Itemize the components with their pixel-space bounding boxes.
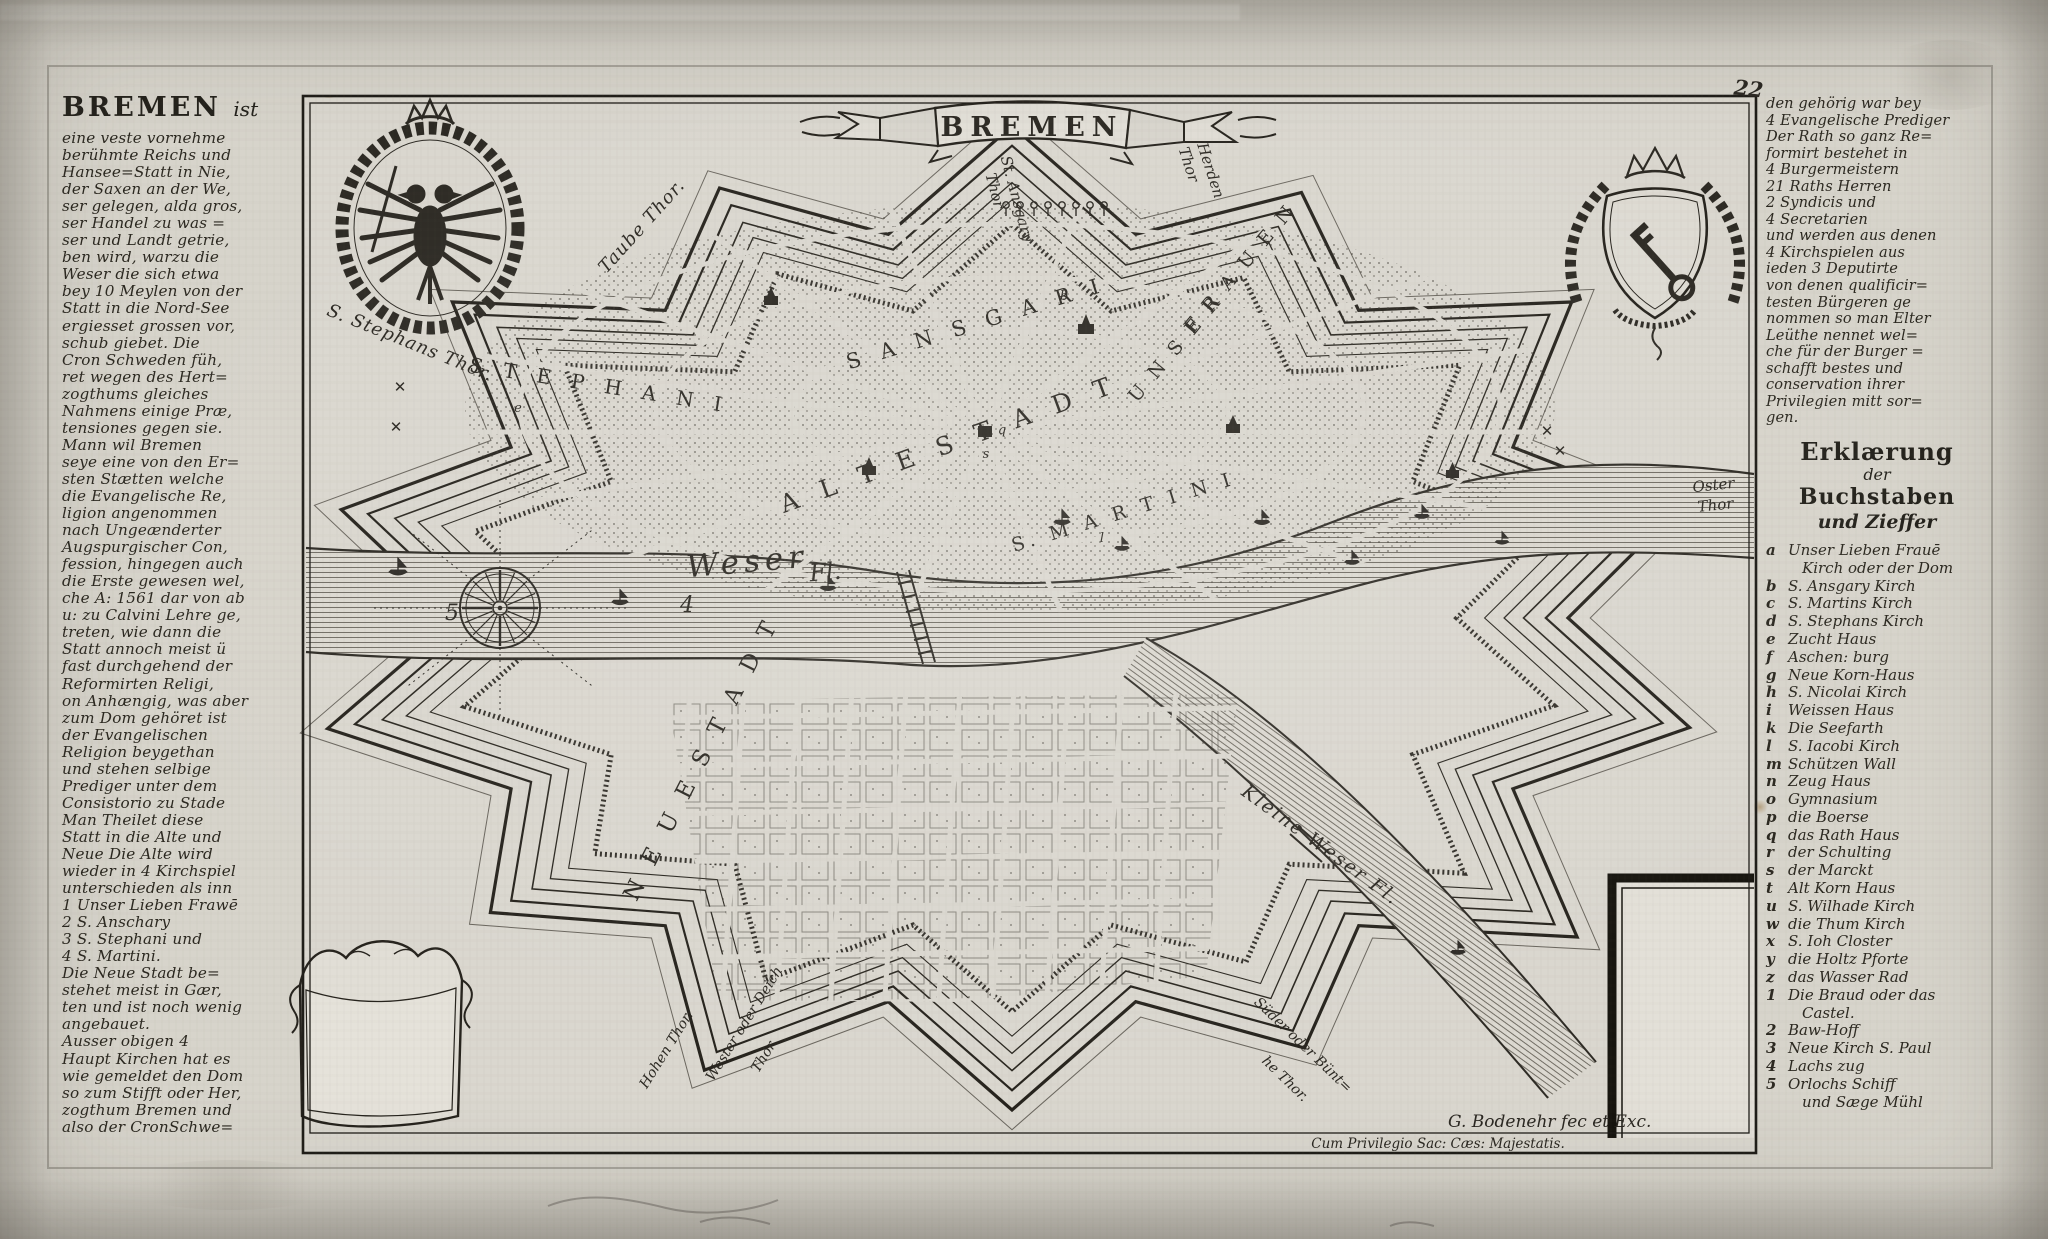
right-text-column: den gehörig war bey4 Evangelische Predig… bbox=[1766, 96, 1988, 1111]
legend-row: wdie Thum Kirch bbox=[1766, 916, 1988, 934]
legend-key bbox=[1766, 560, 1788, 578]
map-label: e bbox=[514, 401, 522, 416]
map-label: b bbox=[1060, 289, 1068, 304]
text-line: treten, wie dann die bbox=[62, 624, 312, 641]
legend-row: und Sæge Mühl bbox=[1766, 1094, 1988, 1112]
text-line: Nahmens einige Præ, bbox=[62, 403, 312, 420]
empty-cartouche bbox=[290, 941, 472, 1126]
text-line: 4 Secretarien bbox=[1766, 212, 1988, 229]
text-line: Cron Schweden füh, bbox=[62, 352, 312, 369]
text-line: Statt in die Alte und bbox=[62, 829, 312, 846]
legend-key: q bbox=[1766, 827, 1788, 845]
legend-text: das Wasser Rad bbox=[1788, 969, 1908, 987]
legend-key: z bbox=[1766, 969, 1788, 987]
text-line: fession, hingegen auch bbox=[62, 556, 312, 573]
legend-text: Alt Korn Haus bbox=[1788, 880, 1895, 898]
legend-text: Die Seefarth bbox=[1788, 720, 1884, 738]
map-label: q bbox=[998, 423, 1006, 438]
left-column-heading: BREMEN ist bbox=[62, 92, 312, 123]
legend-row: 5Orlochs Schiff bbox=[1766, 1076, 1988, 1094]
legend-key: f bbox=[1766, 649, 1788, 667]
right-column-intro: den gehörig war bey4 Evangelische Predig… bbox=[1766, 96, 1988, 427]
legend-key: g bbox=[1766, 667, 1788, 685]
text-line: angebauet. bbox=[62, 1016, 312, 1033]
map-label: 4 bbox=[679, 593, 694, 618]
legend-text: S. Ansgary Kirch bbox=[1788, 578, 1916, 596]
text-line: ligion angenommen bbox=[62, 505, 312, 522]
legend-title-line: Erklærung bbox=[1766, 437, 1988, 466]
legend-row: hS. Nicolai Kirch bbox=[1766, 684, 1988, 702]
text-line: den gehörig war bey bbox=[1766, 96, 1988, 113]
privilege-imprint: Cum Privilegio Sac: Cæs: Majestatis. bbox=[1311, 1136, 1565, 1152]
legend-title-line: und Zieffer bbox=[1766, 510, 1988, 534]
text-line: gen. bbox=[1766, 410, 1988, 427]
legend-key: w bbox=[1766, 916, 1788, 934]
text-line: Hansee=Statt in Nie, bbox=[62, 164, 312, 181]
legend-row: eZucht Haus bbox=[1766, 631, 1988, 649]
legend-text: Gymnasium bbox=[1788, 791, 1878, 809]
text-line: eine veste vornehme bbox=[62, 130, 312, 147]
text-line: und werden aus denen bbox=[1766, 228, 1988, 245]
legend-row: Kirch oder der Dom bbox=[1766, 560, 1988, 578]
legend-text: die Thum Kirch bbox=[1788, 916, 1906, 934]
legend-key bbox=[1766, 1094, 1788, 1112]
text-line: nach Ungeænderter bbox=[62, 522, 312, 539]
text-line: also der CronSchwe= bbox=[62, 1119, 312, 1136]
legend-text: S. Martins Kirch bbox=[1788, 595, 1913, 613]
legend-row: qdas Rath Haus bbox=[1766, 827, 1988, 845]
text-line: 2 S. Anschary bbox=[62, 914, 312, 931]
text-line: Haupt Kirchen hat es bbox=[62, 1051, 312, 1068]
legend-key: k bbox=[1766, 720, 1788, 738]
legend-row: pdie Boerse bbox=[1766, 809, 1988, 827]
text-line: zogthums gleiches bbox=[62, 386, 312, 403]
legend-row: rder Schulting bbox=[1766, 844, 1988, 862]
legend-row: 1Die Braud oder das bbox=[1766, 987, 1988, 1005]
text-line: der Evangelischen bbox=[62, 727, 312, 744]
text-line: 3 S. Stephani und bbox=[62, 931, 312, 948]
text-line: 4 Burgermeistern bbox=[1766, 162, 1988, 179]
new-town-blocks bbox=[660, 690, 1240, 1010]
legend-text: Orlochs Schiff bbox=[1788, 1076, 1896, 1094]
text-line: und stehen selbige bbox=[62, 761, 312, 778]
engraver-signature: G. Bodenehr fec et Exc. bbox=[1448, 1112, 1651, 1132]
text-line: 4 S. Martini. bbox=[62, 948, 312, 965]
text-line: seye eine von den Er= bbox=[62, 454, 312, 471]
text-line: schub giebet. Die bbox=[62, 335, 312, 352]
legend-text: Neue Kirch S. Paul bbox=[1788, 1040, 1931, 1058]
map-label: ✕ bbox=[1541, 422, 1554, 440]
legend-title-line: Buchstaben bbox=[1766, 484, 1988, 510]
map-label: ✕ bbox=[394, 378, 407, 396]
legend-key: a bbox=[1766, 542, 1788, 560]
text-line: stehet meist in Gær, bbox=[62, 982, 312, 999]
legend-row: cS. Martins Kirch bbox=[1766, 595, 1988, 613]
legend-row: Castel. bbox=[1766, 1005, 1988, 1023]
legend-text: Zucht Haus bbox=[1788, 631, 1876, 649]
legend-row: kDie Seefarth bbox=[1766, 720, 1988, 738]
text-line: ten und ist noch wenig bbox=[62, 999, 312, 1016]
text-line: wie gemeldet den Dom bbox=[62, 1068, 312, 1085]
legend-key: 3 bbox=[1766, 1040, 1788, 1058]
text-line: Mann wil Bremen bbox=[62, 437, 312, 454]
text-line: Weser die sich etwa bbox=[62, 266, 312, 283]
text-line: die Erste gewesen wel, bbox=[62, 573, 312, 590]
text-line: Religion beygethan bbox=[62, 744, 312, 761]
legend-key: r bbox=[1766, 844, 1788, 862]
text-line: wieder in 4 Kirchspiel bbox=[62, 863, 312, 880]
legend-row: aUnser Lieben Frauē bbox=[1766, 542, 1988, 560]
legend-key: h bbox=[1766, 684, 1788, 702]
legend-key: 4 bbox=[1766, 1058, 1788, 1076]
legend-row: zdas Wasser Rad bbox=[1766, 969, 1988, 987]
legend-text: Weissen Haus bbox=[1788, 702, 1894, 720]
legend-text: Baw-Hoff bbox=[1788, 1022, 1859, 1040]
map-label: Thor bbox=[1697, 494, 1735, 516]
heading-word: BREMEN bbox=[62, 92, 221, 123]
text-line: fast durchgehend der bbox=[62, 658, 312, 675]
legend-key: l bbox=[1766, 738, 1788, 756]
map-label: s bbox=[983, 447, 990, 462]
legend-text: Castel. bbox=[1788, 1005, 1855, 1023]
text-line: zogthum Bremen und bbox=[62, 1102, 312, 1119]
blank-corner-panel bbox=[1612, 876, 1754, 1138]
legend-key: d bbox=[1766, 613, 1788, 631]
legend-row: iWeissen Haus bbox=[1766, 702, 1988, 720]
legend-text: Schützen Wall bbox=[1788, 756, 1896, 774]
legend-key: o bbox=[1766, 791, 1788, 809]
legend-row: ydie Holtz Pforte bbox=[1766, 951, 1988, 969]
text-line: Der Rath so ganz Re= bbox=[1766, 129, 1988, 146]
legend-key: n bbox=[1766, 773, 1788, 791]
legend-row: 2Baw-Hoff bbox=[1766, 1022, 1988, 1040]
text-line: zum Dom gehöret ist bbox=[62, 710, 312, 727]
legend-row: nZeug Haus bbox=[1766, 773, 1988, 791]
text-line: 2 Syndicis und bbox=[1766, 195, 1988, 212]
text-line: 4 Evangelische Prediger bbox=[1766, 113, 1988, 130]
text-line: Privilegien mitt sor= bbox=[1766, 394, 1988, 411]
text-line: ben wird, warzu die bbox=[62, 249, 312, 266]
text-line: bey 10 Meylen von der bbox=[62, 283, 312, 300]
legend-key: p bbox=[1766, 809, 1788, 827]
text-line: 4 Kirchspielen aus bbox=[1766, 245, 1988, 262]
text-line: ret wegen des Hert= bbox=[62, 369, 312, 386]
heading-suffix: ist bbox=[233, 97, 258, 121]
legend-row: mSchützen Wall bbox=[1766, 756, 1988, 774]
legend-text: Neue Korn-Haus bbox=[1788, 667, 1914, 685]
text-line: formirt bestehet in bbox=[1766, 146, 1988, 163]
text-line: testen Bürgeren ge bbox=[1766, 295, 1988, 312]
text-line: tensiones gegen sie. bbox=[62, 420, 312, 437]
map-label: 5 bbox=[445, 601, 459, 626]
text-line: che A: 1561 dar von ab bbox=[62, 590, 312, 607]
text-line: ser und Landt getrie, bbox=[62, 232, 312, 249]
legend-key: u bbox=[1766, 898, 1788, 916]
legend-key: 5 bbox=[1766, 1076, 1788, 1094]
legend-text: S. Iacobi Kirch bbox=[1788, 738, 1900, 756]
text-line: Man Theilet diese bbox=[62, 812, 312, 829]
text-line: che für der Burger = bbox=[1766, 344, 1988, 361]
text-line: Ausser obigen 4 bbox=[62, 1033, 312, 1050]
text-line: schafft bestes und bbox=[1766, 361, 1988, 378]
text-line: Statt annoch meist ü bbox=[62, 641, 312, 658]
legend-key: e bbox=[1766, 631, 1788, 649]
legend-row: tAlt Korn Haus bbox=[1766, 880, 1988, 898]
text-line: Consistorio zu Stade bbox=[62, 795, 312, 812]
text-line: ser Handel zu was = bbox=[62, 215, 312, 232]
text-line: nommen so man Elter bbox=[1766, 311, 1988, 328]
legend-text: Zeug Haus bbox=[1788, 773, 1871, 791]
text-line: sten Stætten welche bbox=[62, 471, 312, 488]
pencil-marks bbox=[548, 1197, 1434, 1226]
legend-row: gNeue Korn-Haus bbox=[1766, 667, 1988, 685]
banner-title: BREMEN bbox=[941, 112, 1124, 143]
map-label: l bbox=[1100, 531, 1104, 546]
map-label: Fl. bbox=[807, 557, 842, 588]
legend-text: Lachs zug bbox=[1788, 1058, 1865, 1076]
text-line: Prediger unter dem bbox=[62, 778, 312, 795]
legend-text: Die Braud oder das bbox=[1788, 987, 1935, 1005]
text-line: conservation ihrer bbox=[1766, 377, 1988, 394]
text-line: ergiesset grossen vor, bbox=[62, 318, 312, 335]
text-line: berühmte Reichs und bbox=[62, 147, 312, 164]
text-line: on Anhængig, was aber bbox=[62, 693, 312, 710]
legend-text: S. Stephans Kirch bbox=[1788, 613, 1924, 631]
page-number: 22 bbox=[1733, 75, 1765, 103]
text-line: Leüthe nennet wel= bbox=[1766, 328, 1988, 345]
legend-title-line: der bbox=[1766, 466, 1988, 484]
legend-key: x bbox=[1766, 933, 1788, 951]
text-line: Neue Die Alte wird bbox=[62, 846, 312, 863]
legend-text: und Sæge Mühl bbox=[1788, 1094, 1923, 1112]
text-line: 1 Unser Lieben Frawē bbox=[62, 897, 312, 914]
text-line: Augspurgischer Con, bbox=[62, 539, 312, 556]
legend-key: c bbox=[1766, 595, 1788, 613]
legend-row: lS. Iacobi Kirch bbox=[1766, 738, 1988, 756]
legend-title: Erklærung der Buchstaben und Zieffer bbox=[1766, 437, 1988, 534]
text-line: Reformirten Religi, bbox=[62, 676, 312, 693]
legend-key: 1 bbox=[1766, 987, 1788, 1005]
text-line: so zum Stifft oder Her, bbox=[62, 1085, 312, 1102]
text-line: ieden 3 Deputirte bbox=[1766, 261, 1988, 278]
legend-key: b bbox=[1766, 578, 1788, 596]
left-column-body: eine veste vornehmeberühmte Reichs undHa… bbox=[62, 130, 312, 1136]
legend-text: S. Nicolai Kirch bbox=[1788, 684, 1907, 702]
text-line: der Saxen an der We, bbox=[62, 181, 312, 198]
legend-text: S. Wilhade Kirch bbox=[1788, 898, 1915, 916]
text-line: die Evangelische Re, bbox=[62, 488, 312, 505]
antique-map-scan: BREMEN ist eine veste vornehmeberühmte R… bbox=[0, 0, 2048, 1239]
legend-list: aUnser Lieben FrauēKirch oder der DombS.… bbox=[1766, 542, 1988, 1112]
legend-row: sder Marckt bbox=[1766, 862, 1988, 880]
legend-row: fAschen: burg bbox=[1766, 649, 1988, 667]
left-text-column: BREMEN ist eine veste vornehmeberühmte R… bbox=[62, 92, 312, 1136]
text-line: von denen qualificir= bbox=[1766, 278, 1988, 295]
legend-key: y bbox=[1766, 951, 1788, 969]
legend-row: 4Lachs zug bbox=[1766, 1058, 1988, 1076]
legend-key bbox=[1766, 1005, 1788, 1023]
legend-row: xS. Ioh Closter bbox=[1766, 933, 1988, 951]
text-line: unterschieden als inn bbox=[62, 880, 312, 897]
legend-text: Kirch oder der Dom bbox=[1788, 560, 1953, 578]
legend-row: bS. Ansgary Kirch bbox=[1766, 578, 1988, 596]
legend-key: m bbox=[1766, 756, 1788, 774]
text-line: u: zu Calvini Lehre ge, bbox=[62, 607, 312, 624]
legend-row: uS. Wilhade Kirch bbox=[1766, 898, 1988, 916]
legend-key: t bbox=[1766, 880, 1788, 898]
legend-text: die Boerse bbox=[1788, 809, 1869, 827]
legend-row: oGymnasium bbox=[1766, 791, 1988, 809]
legend-text: Aschen: burg bbox=[1788, 649, 1889, 667]
legend-text: das Rath Haus bbox=[1788, 827, 1899, 845]
legend-text: S. Ioh Closter bbox=[1788, 933, 1892, 951]
legend-text: die Holtz Pforte bbox=[1788, 951, 1908, 969]
legend-key: s bbox=[1766, 862, 1788, 880]
text-line: Die Neue Stadt be= bbox=[62, 965, 312, 982]
legend-text: der Schulting bbox=[1788, 844, 1891, 862]
map-label: ✕ bbox=[390, 418, 403, 436]
text-line: ser gelegen, alda gros, bbox=[62, 198, 312, 215]
legend-text: der Marckt bbox=[1788, 862, 1873, 880]
legend-row: dS. Stephans Kirch bbox=[1766, 613, 1988, 631]
map-label: ✕ bbox=[1554, 442, 1567, 460]
legend-row: 3Neue Kirch S. Paul bbox=[1766, 1040, 1988, 1058]
legend-key: i bbox=[1766, 702, 1788, 720]
legend-text: Unser Lieben Frauē bbox=[1788, 542, 1940, 560]
text-line: Statt in die Nord-See bbox=[62, 300, 312, 317]
legend-key: 2 bbox=[1766, 1022, 1788, 1040]
text-line: 21 Raths Herren bbox=[1766, 179, 1988, 196]
